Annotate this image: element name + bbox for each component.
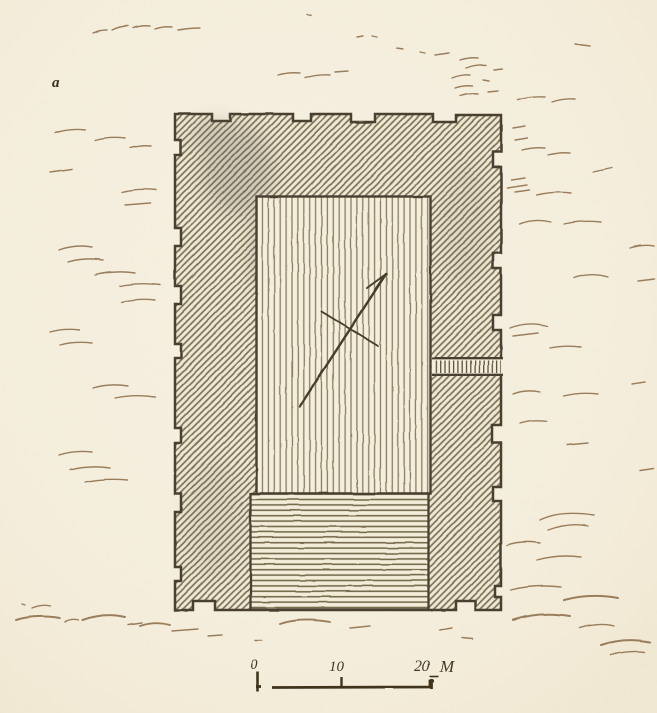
svg-text:M: M: [439, 657, 455, 676]
svg-text:20: 20: [414, 658, 430, 675]
svg-text:0: 0: [250, 657, 258, 673]
svg-text:a: a: [52, 75, 60, 91]
svg-text:10: 10: [329, 659, 345, 675]
